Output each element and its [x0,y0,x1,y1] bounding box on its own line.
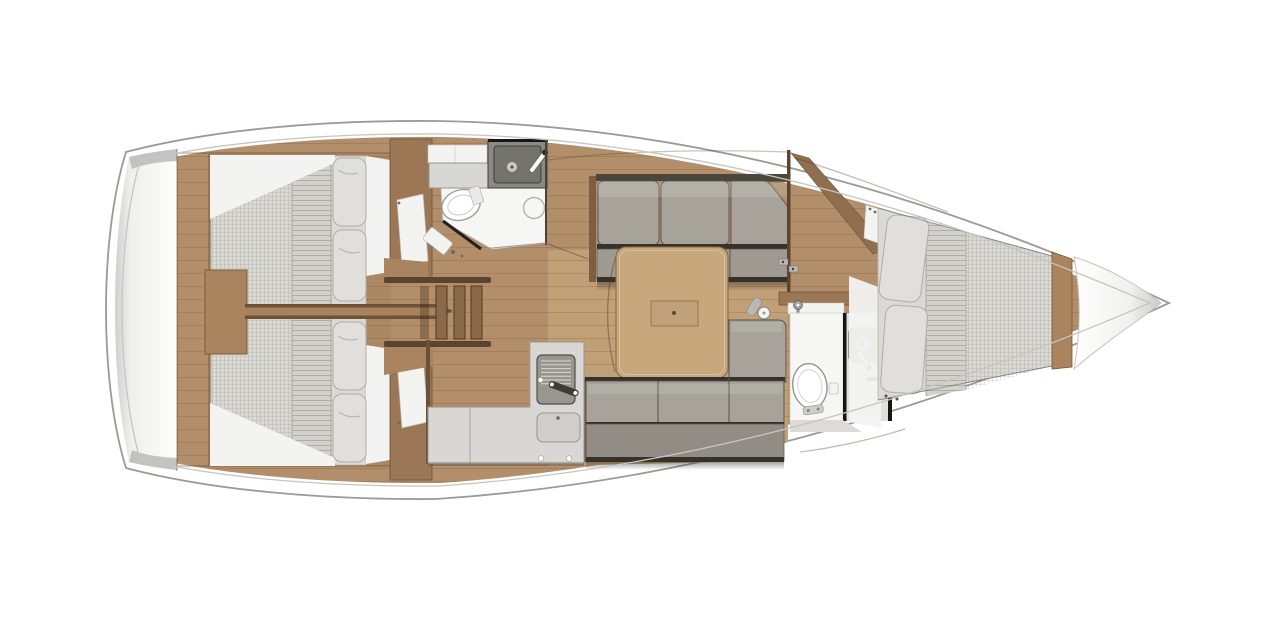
pillow [333,158,366,226]
pillow [333,322,366,390]
vanity-counter [429,163,488,188]
step-tread [436,286,447,339]
cabinet [428,145,487,163]
pillow [333,230,366,301]
step-tread [471,286,482,339]
knob [566,456,572,462]
bow-locker [1074,257,1161,369]
yacht-floor-plan [0,0,1280,640]
knob [538,456,544,462]
pillow [333,394,366,462]
pillow [880,305,928,395]
forward-cabin [849,205,1072,428]
step-tread [454,286,465,339]
paper-holder [829,383,838,394]
saloon-table [608,247,728,378]
cabin-door [397,194,428,267]
